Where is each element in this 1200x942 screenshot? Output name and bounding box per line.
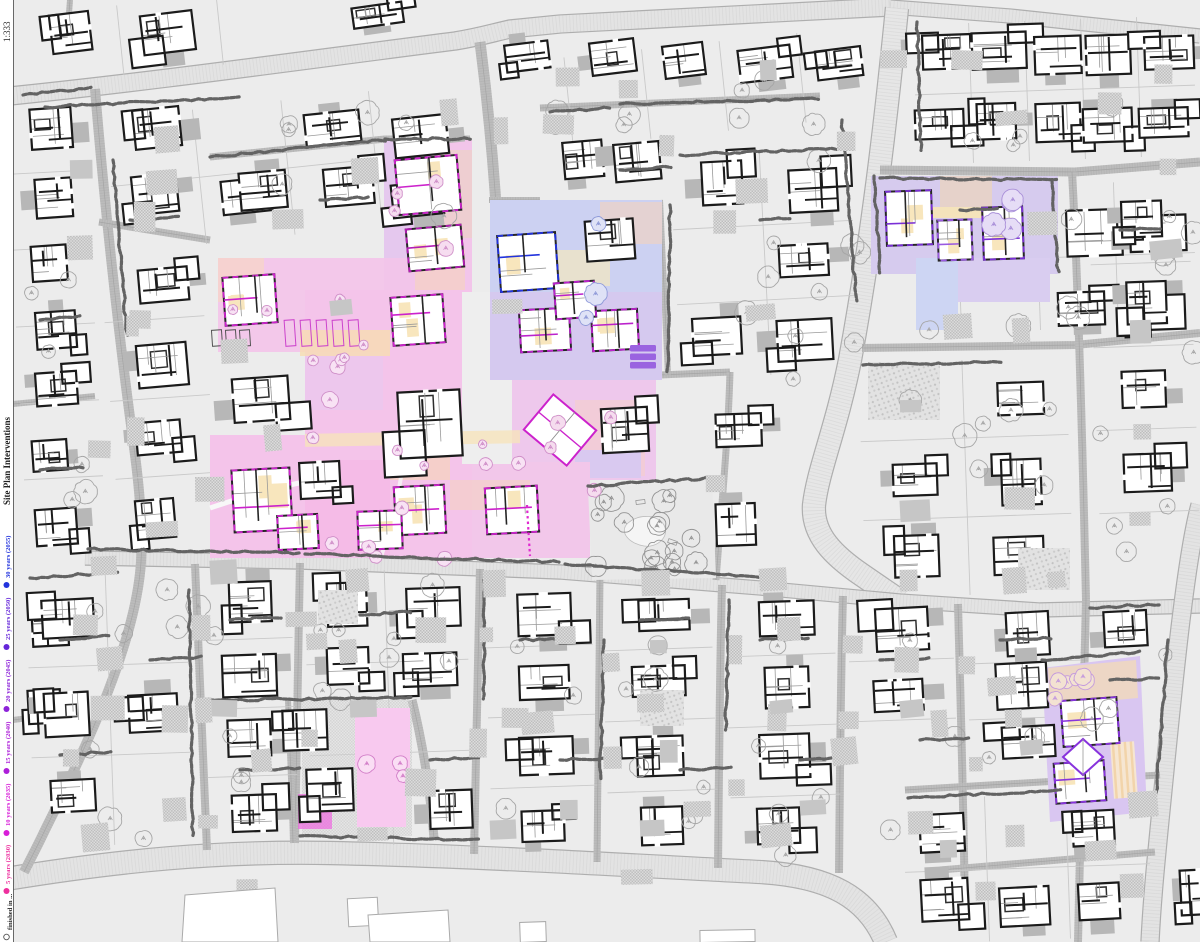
svg-text:15 years (2040): 15 years (2040) <box>5 722 12 764</box>
svg-text:30 years (2055): 30 years (2055) <box>5 536 12 578</box>
svg-text:1:333: 1:333 <box>2 21 12 42</box>
svg-text:5 years (2030): 5 years (2030) <box>5 845 12 884</box>
svg-text:25 years (2050): 25 years (2050) <box>5 598 12 640</box>
svg-text:10 years (2035): 10 years (2035) <box>5 784 12 826</box>
svg-text:Site Plan Interventions: Site Plan Interventions <box>2 417 12 505</box>
svg-text:finished in ...: finished in ... <box>7 894 14 930</box>
svg-text:20 years (2045): 20 years (2045) <box>5 660 12 702</box>
